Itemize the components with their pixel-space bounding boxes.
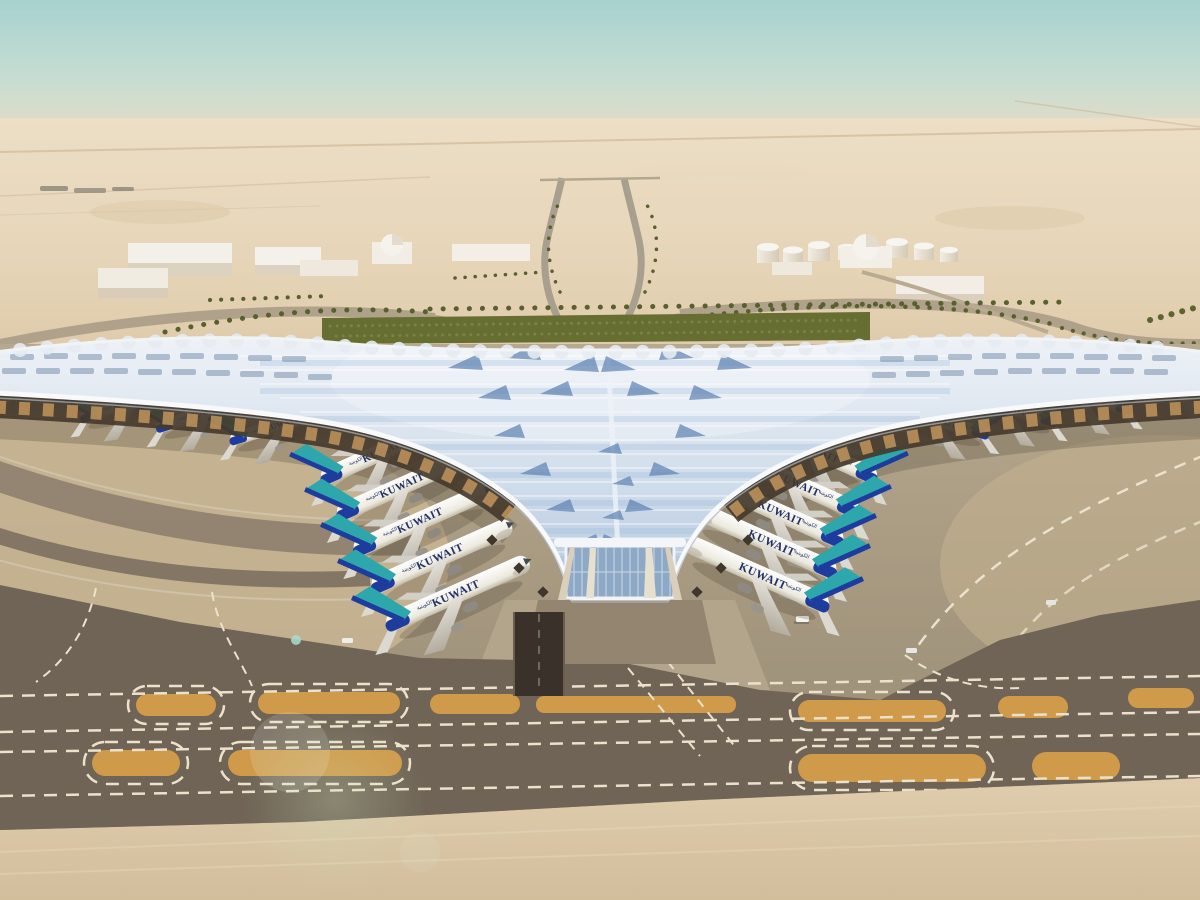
sunken-access-road [514, 612, 564, 696]
airport-rendering: KUWAIT الكويتية KUWAIT الكويتية [0, 0, 1200, 900]
facade-canopy-lip [554, 538, 686, 547]
terminal-entrance-facade [554, 538, 686, 600]
scene: KUWAIT الكويتية KUWAIT الكويتية [0, 0, 1200, 900]
